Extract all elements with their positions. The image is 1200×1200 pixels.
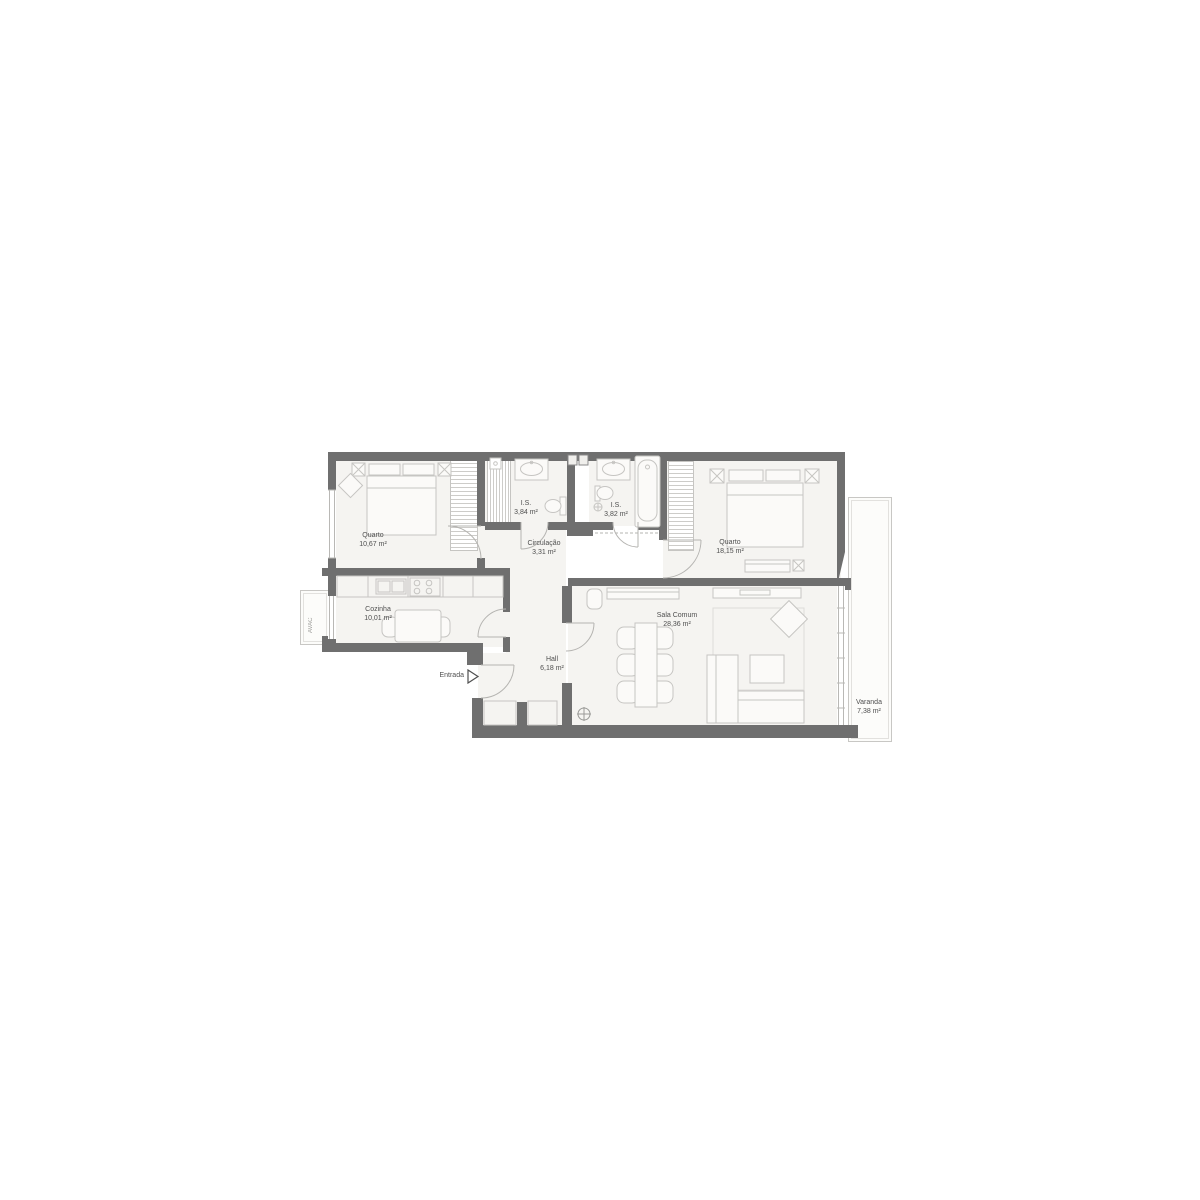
wall-bath2-quarto2 (659, 452, 667, 530)
wall-shaft-block (567, 522, 593, 536)
wall-bath2-bottom-b (638, 522, 659, 530)
entrance-label: Entrada (402, 672, 464, 679)
floor-sala (568, 583, 841, 729)
wall-hall-sala-stub (562, 683, 572, 728)
wall-hall-sala (562, 586, 572, 623)
floor-plan-page: Quarto10,67 m² I.S.3,84 m² I.S.3,82 m² Q… (0, 0, 1200, 1200)
wall-top (328, 452, 845, 461)
wall-cozinha-bottom (322, 643, 483, 652)
wall-entry-stub (472, 698, 483, 728)
hvac-label: AVAC (308, 601, 314, 633)
wall-quarto1-circ (477, 558, 485, 576)
wall-cozinha-right-b (503, 637, 510, 652)
hvac-inner-edge (303, 593, 327, 642)
room-label-sala-comum: Sala Comum28,36 m² (629, 611, 725, 630)
wall-closet-divider (517, 702, 527, 725)
wall-bath1-bottom-b (548, 522, 567, 530)
room-label-varanda: Varanda7,38 m² (847, 698, 891, 717)
room-label-hall: Hall6,18 m² (524, 655, 580, 674)
wall-bottom (472, 725, 858, 738)
wall-entry-block (467, 643, 483, 665)
wall-cozinha-left-a (328, 576, 336, 596)
room-label-circulacao: Circulação3,31 m² (510, 539, 578, 558)
wardrobe-quarto-2 (668, 461, 694, 551)
wall-sala-top-end (837, 578, 851, 590)
wall-left-upper (328, 452, 336, 490)
wall-bath2-bottom-a (593, 522, 613, 530)
room-label-is-2: I.S.3,82 m² (588, 501, 644, 520)
wall-baths-divider (567, 452, 575, 530)
apartment-floor-plan: Quarto10,67 m² I.S.3,84 m² I.S.3,82 m² Q… (298, 443, 898, 753)
room-label-quarto-1: Quarto10,67 m² (338, 531, 408, 550)
wardrobe-quarto-1 (450, 459, 478, 551)
room-label-quarto-2: Quarto18,15 m² (696, 538, 764, 557)
wall-right (837, 452, 845, 552)
wall-sala-top (568, 578, 838, 586)
room-label-cozinha: Cozinha10,01 m² (340, 605, 416, 624)
wall-quarto1-bath1 (477, 452, 485, 526)
room-label-is-1: I.S.3,84 m² (498, 499, 554, 518)
wall-bath1-bottom-a (485, 522, 521, 530)
wall-quarto2-door-stub (659, 530, 667, 540)
wall-cozinha-right-a (503, 576, 510, 612)
